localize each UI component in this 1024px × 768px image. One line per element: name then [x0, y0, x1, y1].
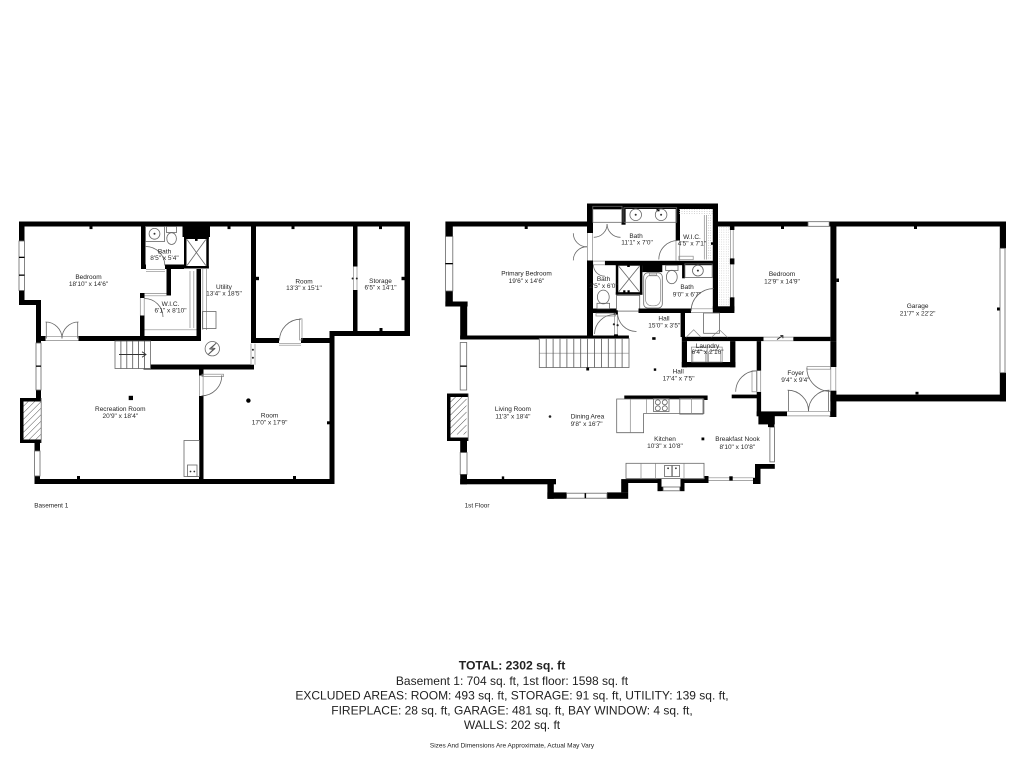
svg-text:19'6" x 14'6": 19'6" x 14'6" — [509, 278, 545, 285]
svg-text:TOTAL: 2302 sq. ft: TOTAL: 2302 sq. ft — [459, 659, 566, 673]
svg-text:10'3" x 10'8": 10'3" x 10'8" — [647, 443, 683, 450]
svg-text:Sizes And Dimensions Are Appro: Sizes And Dimensions Are Approximate, Ac… — [430, 743, 595, 750]
svg-text:Bath: Bath — [680, 284, 694, 291]
svg-text:Garage: Garage — [907, 303, 929, 310]
svg-text:Kitchen: Kitchen — [654, 436, 676, 443]
svg-text:Basement 1: Basement 1 — [34, 503, 69, 510]
svg-text:9'8" x 16'7": 9'8" x 16'7" — [571, 421, 604, 428]
svg-text:Basement 1: 704 sq. ft, 1st fl: Basement 1: 704 sq. ft, 1st floor: 1598 … — [396, 674, 629, 688]
svg-text:WALLS: 202 sq. ft: WALLS: 202 sq. ft — [464, 718, 561, 732]
svg-text:17'0" x 17'9": 17'0" x 17'9" — [252, 420, 288, 427]
svg-text:9'0" x 6'7": 9'0" x 6'7" — [673, 292, 702, 299]
svg-text:6'4" x 2'10": 6'4" x 2'10" — [691, 349, 724, 356]
svg-text:4'5" x 7'1": 4'5" x 7'1" — [678, 241, 707, 248]
svg-text:Hall: Hall — [658, 315, 670, 322]
svg-text:Bedroom: Bedroom — [75, 274, 101, 281]
svg-text:2'5" x 6'0": 2'5" x 6'0" — [589, 283, 618, 290]
svg-text:9'4" x 9'4": 9'4" x 9'4" — [781, 377, 810, 384]
svg-text:8'5" x 5'4": 8'5" x 5'4" — [150, 255, 179, 262]
svg-text:6'1" x 8'10": 6'1" x 8'10" — [154, 308, 187, 315]
svg-text:Primary Bedroom: Primary Bedroom — [501, 271, 552, 278]
svg-text:13'3" x 15'1": 13'3" x 15'1" — [286, 285, 322, 292]
svg-text:12'9" x 14'9": 12'9" x 14'9" — [764, 279, 800, 286]
svg-text:15'0" x 3'5": 15'0" x 3'5" — [648, 323, 681, 330]
svg-text:18'10" x 14'6": 18'10" x 14'6" — [69, 281, 109, 288]
svg-text:20'9" x 18'4": 20'9" x 18'4" — [102, 413, 138, 420]
svg-text:11'1" x 7'0": 11'1" x 7'0" — [621, 240, 653, 247]
svg-text:Bedroom: Bedroom — [769, 271, 795, 278]
svg-text:8'10" x 10'8": 8'10" x 10'8" — [719, 444, 755, 451]
svg-text:Recreation Room: Recreation Room — [95, 406, 146, 413]
svg-text:Hall: Hall — [673, 368, 685, 375]
svg-text:Room: Room — [261, 413, 278, 420]
svg-text:21'7" x 22'2": 21'7" x 22'2" — [900, 310, 936, 317]
svg-text:17'4" x 7'5": 17'4" x 7'5" — [663, 375, 696, 382]
svg-text:Living Room: Living Room — [495, 406, 531, 413]
svg-text:6'5" x 14'1": 6'5" x 14'1" — [364, 285, 397, 292]
svg-text:1st Floor: 1st Floor — [465, 503, 491, 510]
svg-text:EXCLUDED AREAS: ROOM: 493 sq.: EXCLUDED AREAS: ROOM: 493 sq. ft, STORAG… — [295, 689, 728, 703]
svg-text:Breakfast Nook: Breakfast Nook — [715, 436, 760, 443]
svg-text:Dining Area: Dining Area — [571, 414, 605, 421]
svg-text:Foyer: Foyer — [787, 370, 804, 377]
svg-text:13'4" x 18'5": 13'4" x 18'5" — [206, 291, 242, 298]
svg-text:FIREPLACE: 28 sq. ft, GARAGE:: FIREPLACE: 28 sq. ft, GARAGE: 481 sq. ft… — [331, 703, 692, 717]
svg-text:11'3" x 18'4": 11'3" x 18'4" — [495, 414, 531, 421]
